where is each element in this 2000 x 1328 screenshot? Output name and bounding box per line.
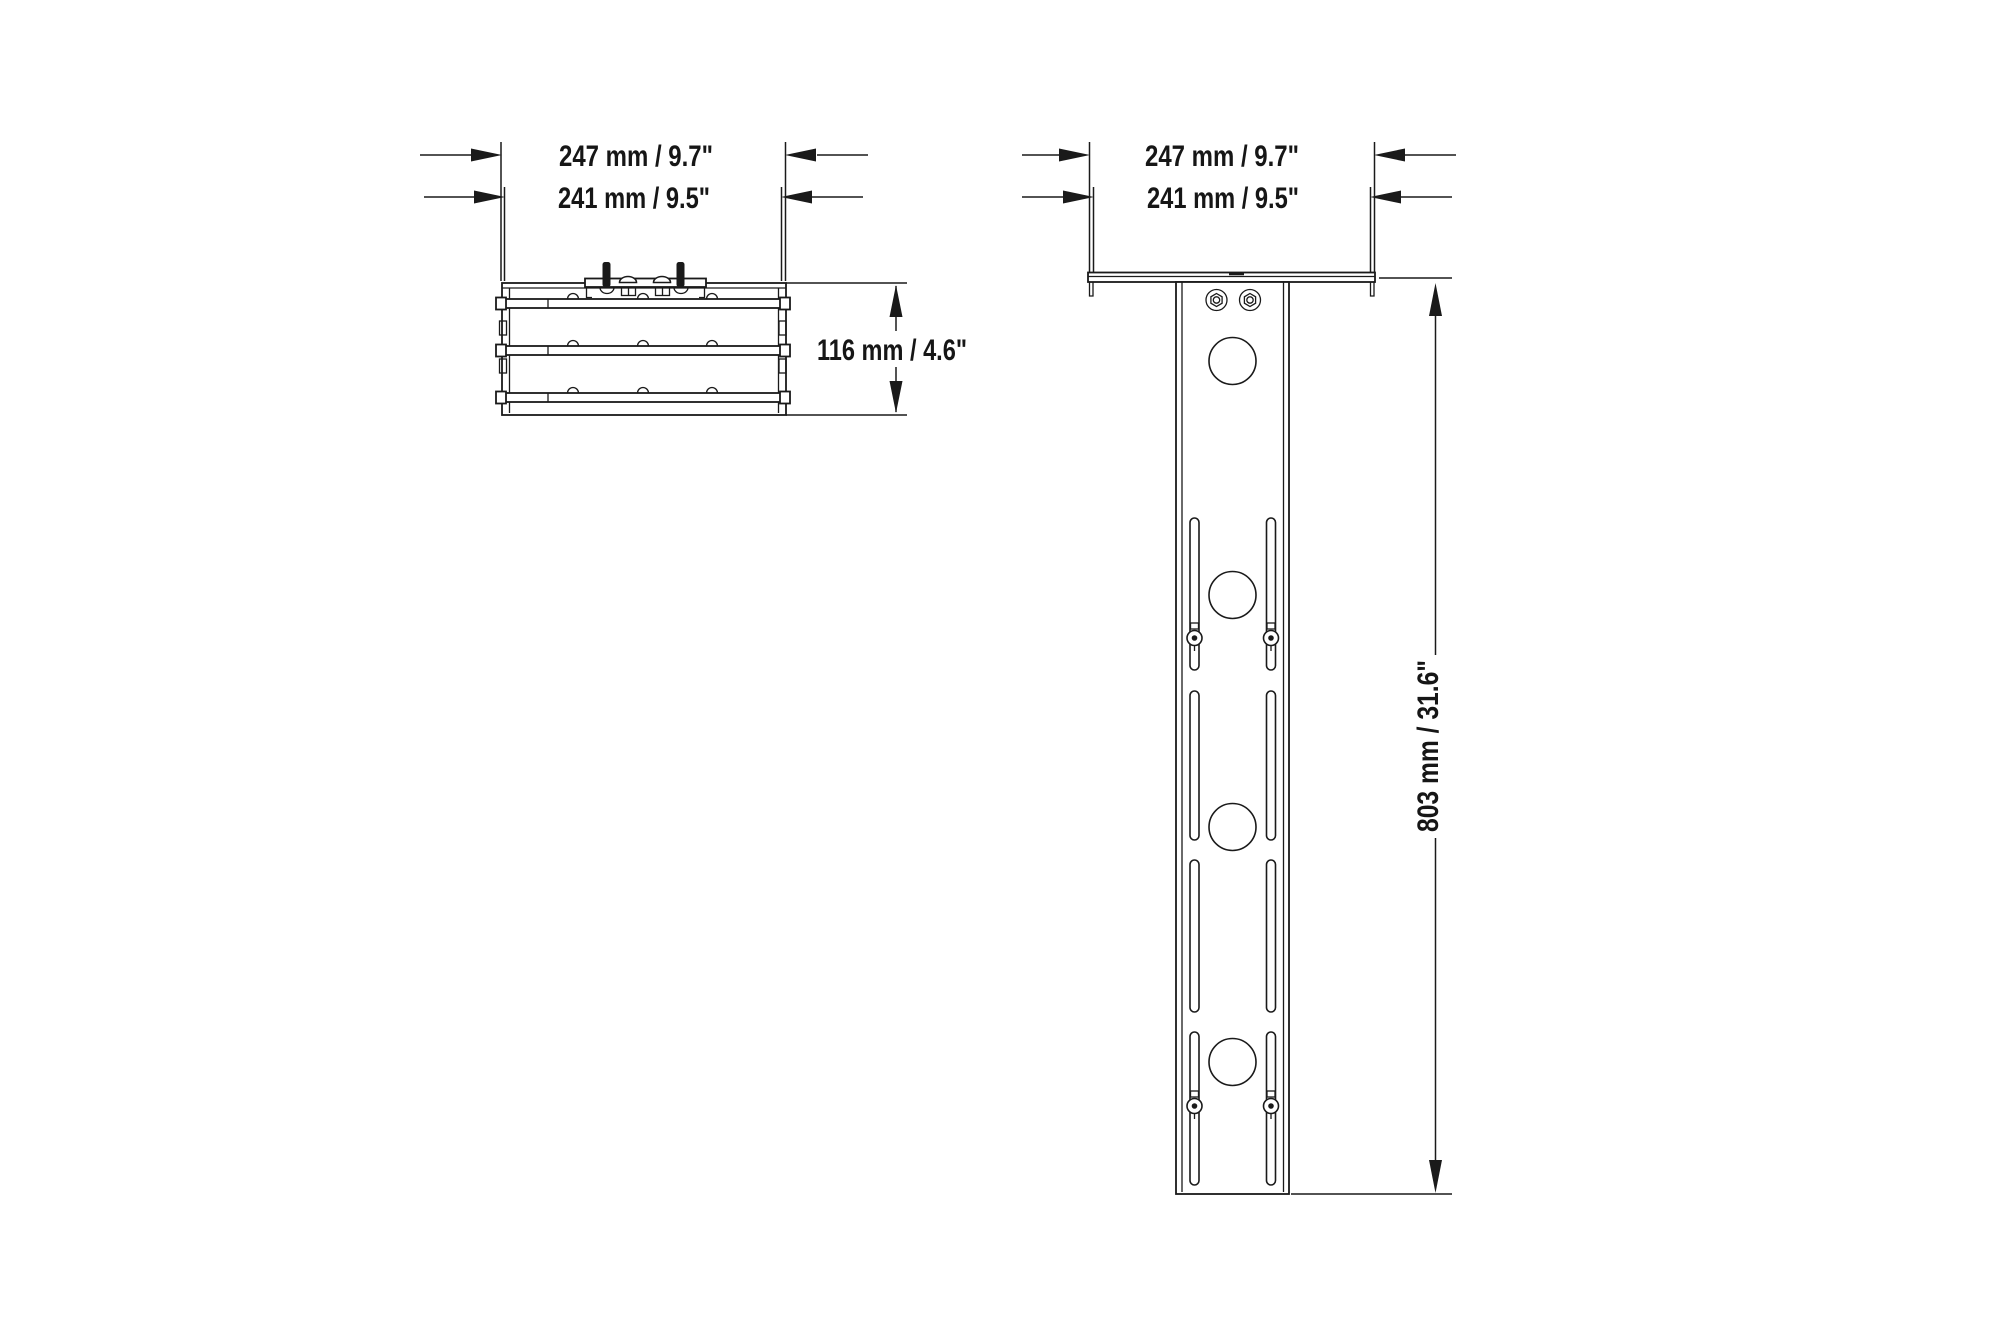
- screw-center: [1268, 635, 1274, 641]
- bracket-body: [496, 283, 790, 415]
- dome-screw-head: [654, 277, 671, 283]
- dim-label-width-outer: 247 mm / 9.7": [559, 140, 713, 173]
- screw-center: [1192, 635, 1198, 641]
- front-dim-height: 803 mm / 31.6": [1291, 278, 1452, 1194]
- side-view: 247 mm / 9.7" 241 mm / 9.5": [420, 140, 967, 415]
- dimension-drawing: 247 mm / 9.7" 241 mm / 9.5": [0, 0, 2000, 1328]
- rail-end-cap: [496, 345, 506, 357]
- plate-end-tab: [1090, 282, 1094, 296]
- screw-center: [1192, 1103, 1198, 1109]
- rail-bar: [502, 346, 786, 355]
- technical-drawing-canvas: 247 mm / 9.7" 241 mm / 9.5": [0, 0, 2000, 1328]
- rail-end-cap: [780, 298, 790, 310]
- arrowhead-left-icon: [1374, 149, 1405, 162]
- arrowhead-left-icon: [785, 149, 816, 162]
- plate-end-tab: [1371, 282, 1375, 296]
- side-dim-width-inner: 241 mm / 9.5": [424, 182, 863, 281]
- rail-end-cap: [780, 345, 790, 357]
- dim-label-height: 116 mm / 4.6": [817, 334, 967, 367]
- dim-label-width-outer: 247 mm / 9.7": [1145, 140, 1299, 173]
- arrowhead-down-icon: [890, 381, 903, 413]
- rail-end-cap: [496, 298, 506, 310]
- arrowhead-up-icon: [890, 285, 903, 317]
- front-view: 247 mm / 9.7" 241 mm / 9.5": [1022, 140, 1456, 1194]
- arrowhead-right-icon: [471, 149, 502, 162]
- arrowhead-right-icon: [1059, 149, 1090, 162]
- side-dim-height: 116 mm / 4.6": [786, 283, 967, 415]
- arrowhead-down-icon: [1429, 1160, 1442, 1193]
- rail-bar: [502, 393, 786, 402]
- mounting-pin: [603, 262, 611, 287]
- rail-end-cap: [496, 392, 506, 404]
- column-body: [1176, 282, 1289, 1194]
- dim-label-width-inner: 241 mm / 9.5": [558, 182, 710, 215]
- dome-screw-head: [620, 277, 637, 283]
- column-outline: [1176, 282, 1289, 1194]
- rail-bar: [502, 299, 786, 308]
- dim-label-width-inner: 241 mm / 9.5": [1147, 182, 1299, 215]
- arrowhead-up-icon: [1429, 283, 1442, 316]
- front-dim-width-inner: 241 mm / 9.5": [1022, 182, 1452, 272]
- dim-label-height: 803 mm / 31.6": [1412, 660, 1445, 832]
- mounting-pin: [677, 262, 685, 287]
- screw-center: [1268, 1103, 1274, 1109]
- rail-end-cap: [780, 392, 790, 404]
